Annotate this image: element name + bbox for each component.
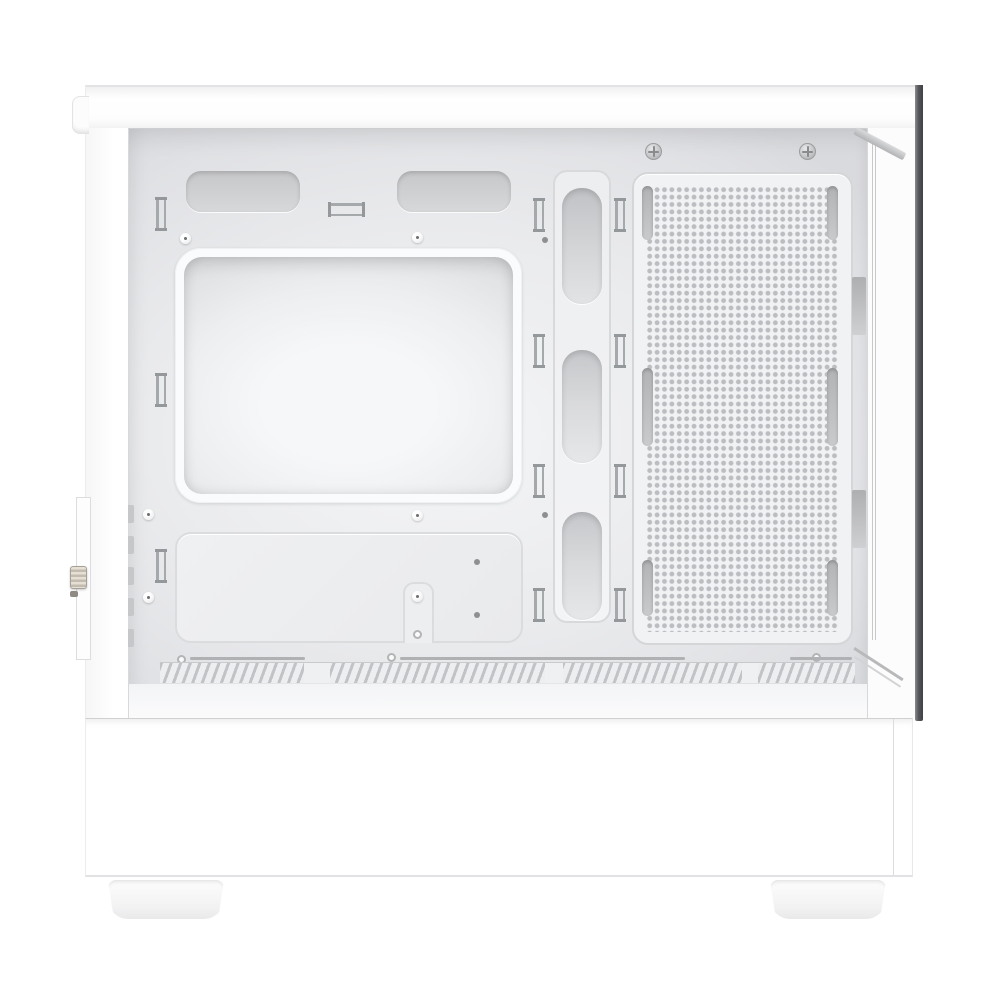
motherboard-tray-cutout — [184, 257, 513, 494]
fan-mount-perforation — [646, 186, 839, 632]
vent-gap — [304, 663, 330, 683]
fan-slot-top-left — [642, 186, 653, 240]
io-knob — [70, 566, 87, 589]
rear-panel-seam — [872, 138, 876, 640]
rear-bracket-slot — [852, 277, 866, 335]
cable-tie-point — [614, 334, 626, 368]
fan-slot-bottom-left — [642, 560, 653, 616]
standoff-screw — [412, 510, 423, 521]
screw-hole — [542, 237, 548, 243]
cable-tie-point — [155, 373, 167, 407]
top-vent-slot-left — [186, 171, 300, 212]
standoff-screw — [412, 232, 423, 243]
standoff-screw — [143, 509, 154, 520]
panel-screw-left — [645, 143, 662, 160]
cable-tie-point — [328, 202, 365, 217]
fan-slot-bottom-right — [827, 560, 838, 616]
chassis-floor — [129, 684, 867, 718]
cable-tie-point — [155, 549, 167, 583]
bottom-band-seam — [893, 719, 894, 876]
cable-grommet-middle — [562, 350, 602, 463]
pc-case-product-photo — [0, 0, 1000, 1000]
vent-gap — [742, 663, 758, 683]
screw-hole — [474, 612, 480, 618]
glass-panel-edge — [915, 85, 923, 721]
standoff-screw — [180, 233, 191, 244]
screw-hole-ring — [387, 653, 396, 662]
power-button-tab — [72, 96, 89, 134]
vent-rail — [790, 657, 852, 660]
cable-tie-point — [533, 464, 545, 498]
rear-bracket-slot — [852, 490, 866, 548]
fan-slot-top-right — [827, 186, 838, 240]
top-vent-slot-right — [397, 171, 511, 212]
cable-grommet-bottom — [562, 512, 602, 620]
cable-tie-point — [155, 197, 167, 231]
vent-gap — [545, 663, 563, 683]
screw-hole-ring — [413, 630, 422, 639]
screw-hole — [474, 559, 480, 565]
standoff-screw — [412, 591, 423, 602]
front-panel-edge — [85, 128, 128, 718]
cable-tie-point — [533, 588, 545, 622]
fan-slot-mid-right — [827, 368, 838, 446]
top-panel — [85, 85, 915, 128]
psu-shroud-plate — [175, 532, 523, 643]
vent-rail — [190, 657, 305, 660]
cable-tie-point — [614, 198, 626, 232]
cable-tie-point — [533, 334, 545, 368]
case-foot-front — [108, 880, 224, 919]
cable-tie-point — [614, 588, 626, 622]
cable-tie-point — [614, 464, 626, 498]
panel-screw-right — [799, 143, 816, 160]
cable-grommet-top — [562, 188, 602, 304]
case-foot-rear — [770, 880, 886, 919]
psu-shroud-exterior — [85, 718, 913, 877]
cable-tie-point — [533, 198, 545, 232]
screw-hole — [542, 512, 548, 518]
io-nub — [70, 591, 78, 597]
vent-rail — [400, 657, 685, 660]
fan-slot-mid-left — [642, 368, 653, 446]
standoff-screw — [143, 592, 154, 603]
